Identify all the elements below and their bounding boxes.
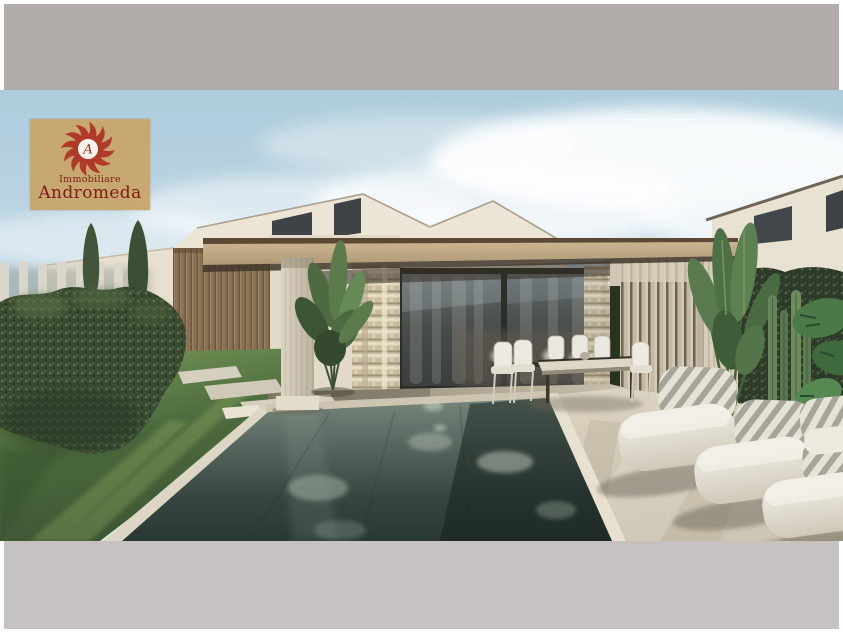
top-letterbox-band <box>4 4 839 90</box>
page: A Immobiliare Andromeda <box>0 0 843 632</box>
bottom-letterbox-band <box>4 541 839 629</box>
glass-sliding-doors <box>396 268 608 398</box>
logo-monogram: A <box>82 143 92 158</box>
clerestory-window <box>334 198 361 237</box>
clerestory-window <box>826 190 843 232</box>
property-photo: A Immobiliare Andromeda <box>0 90 843 541</box>
agency-name-large: Andromeda <box>30 183 150 203</box>
agency-logo-watermark: A Immobiliare Andromeda <box>30 119 150 210</box>
